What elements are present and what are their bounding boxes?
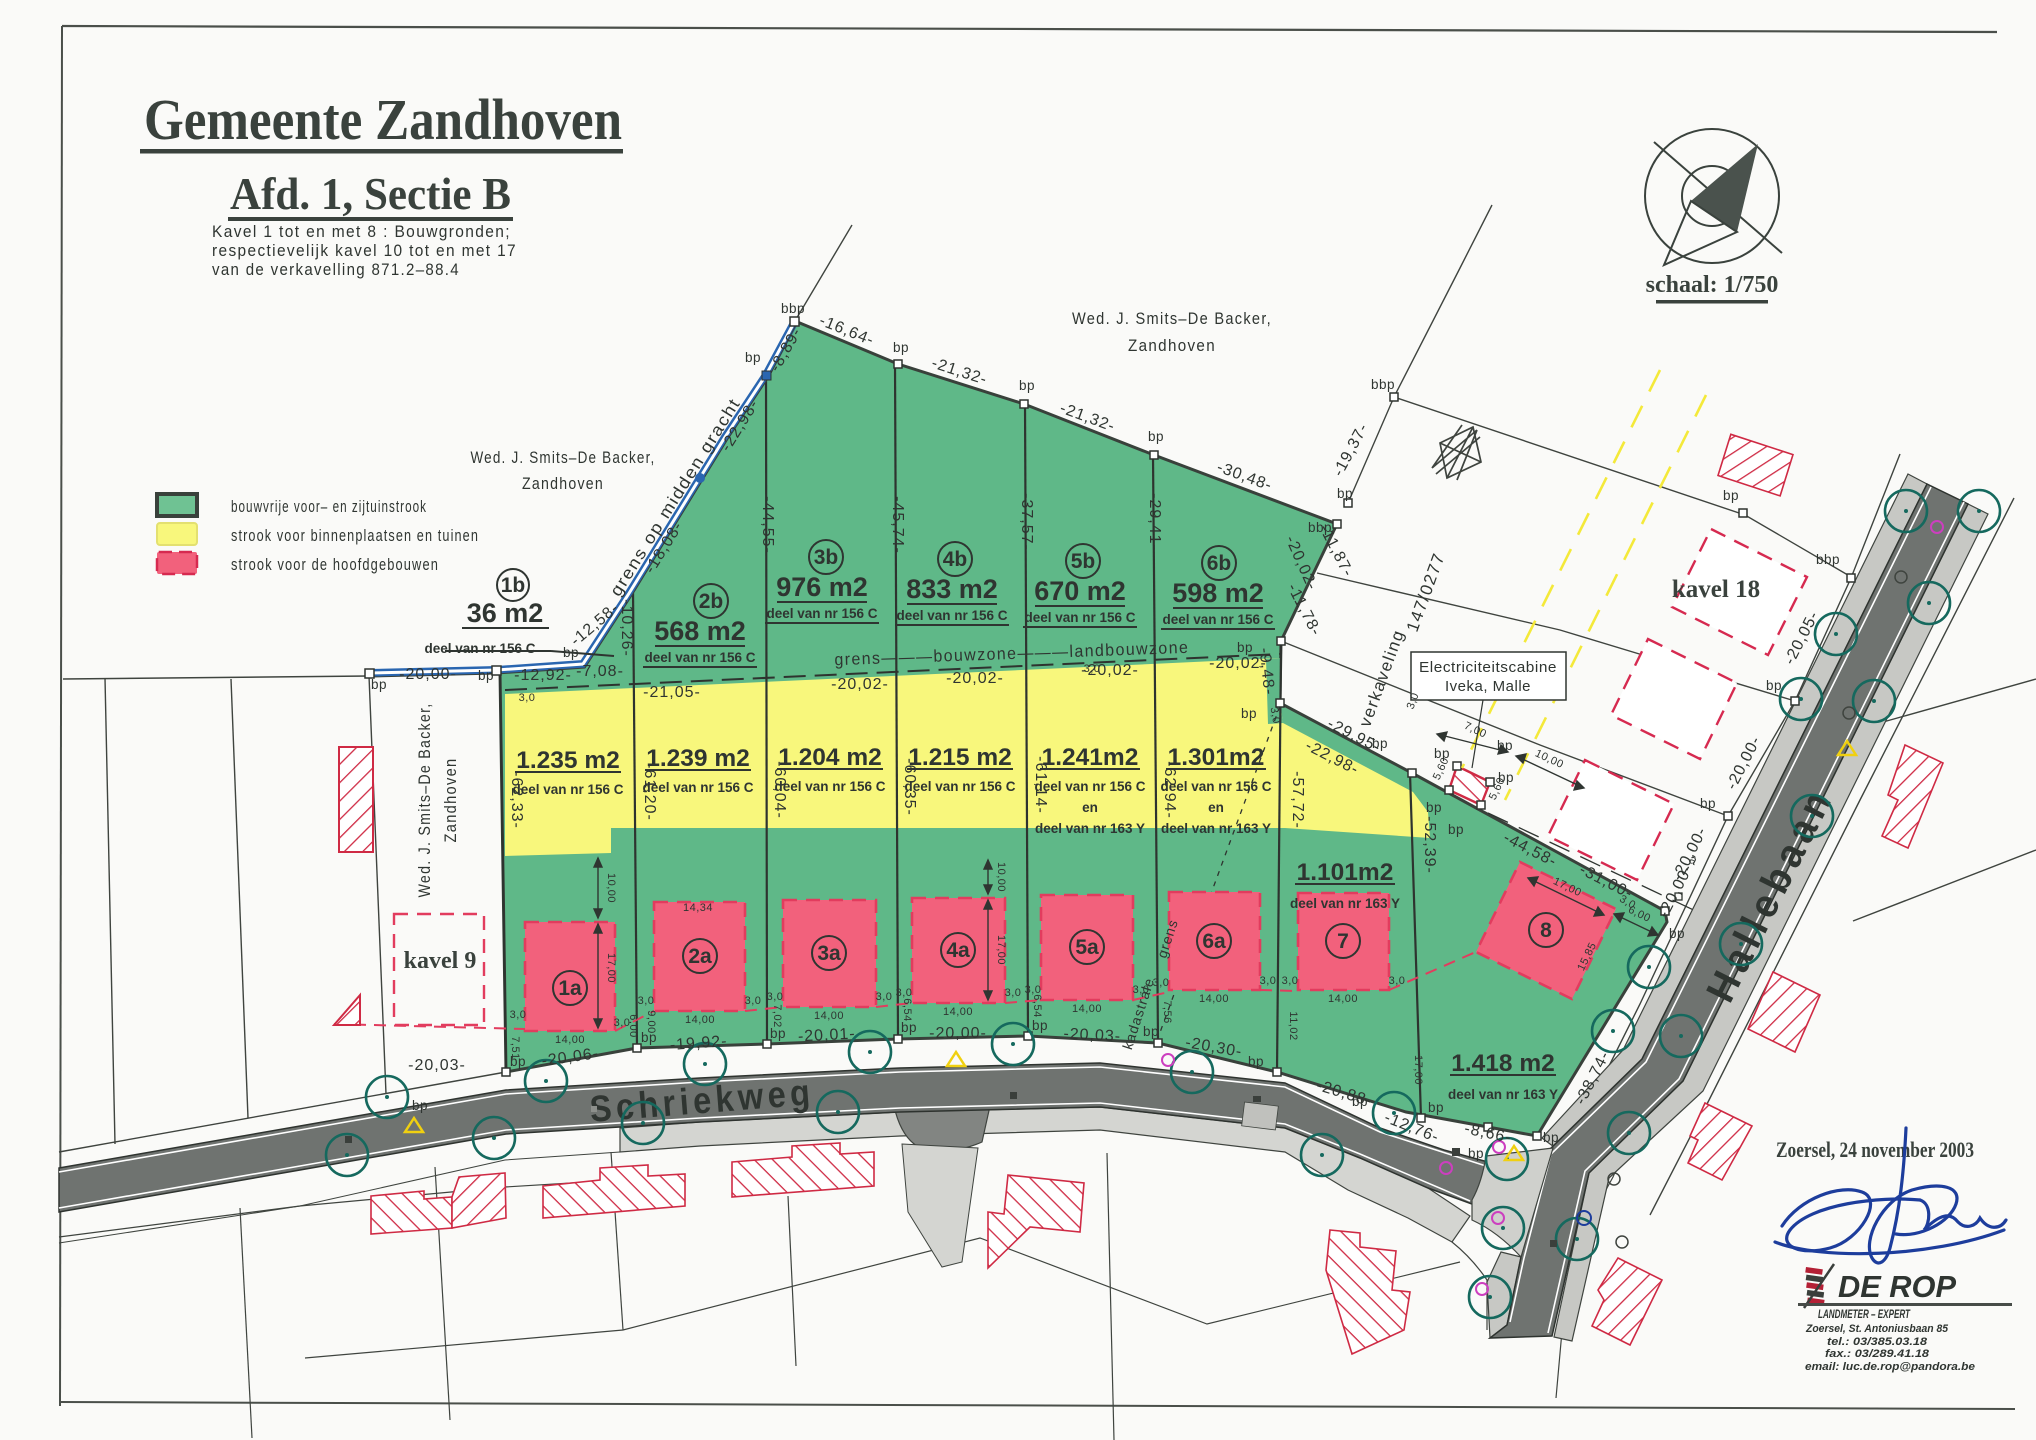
svg-text:1.204 m2: 1.204 m2 [778, 744, 882, 771]
svg-text:bp: bp [1241, 706, 1257, 721]
svg-text:deel van nr 156 C: deel van nr 156 C [1024, 610, 1135, 625]
svg-text:3,0: 3,0 [519, 692, 536, 704]
svg-text:3,0: 3,0 [1389, 975, 1406, 987]
svg-text:1a: 1a [558, 977, 582, 1000]
svg-text:8: 8 [1540, 919, 1552, 942]
svg-text:5b: 5b [1071, 550, 1096, 573]
svg-text:bp: bp [745, 350, 761, 365]
svg-text:-20,00-: -20,00- [929, 1025, 987, 1042]
svg-text:bp: bp [1148, 429, 1164, 444]
svg-text:6,54: 6,54 [1031, 994, 1043, 1017]
svg-text:strook voor de hoofdgebouwen: strook voor de hoofdgebouwen [231, 555, 439, 574]
svg-text:bouwvrije voor– en zijtuinstro: bouwvrije voor– en zijtuinstrook [231, 497, 427, 516]
svg-text:kavel 9: kavel 9 [404, 948, 477, 974]
svg-text:6a: 6a [1202, 930, 1226, 953]
svg-text:deel van nr 156 C: deel van nr 156 C [644, 650, 755, 665]
svg-text:14,00: 14,00 [1328, 993, 1358, 1005]
svg-text:Zoersel, 24 november 2003: Zoersel, 24 november 2003 [1776, 1137, 1974, 1162]
svg-text:-7,08-: -7,08- [576, 663, 624, 680]
svg-text:bp: bp [1700, 796, 1716, 811]
svg-text:deel van nr 156 C: deel van nr 156 C [512, 782, 623, 797]
svg-text:Wed. J. Smits–De Backer,: Wed. J. Smits–De Backer, [471, 448, 656, 467]
svg-text:-20,03-: -20,03- [1063, 1026, 1122, 1046]
svg-text:deel van nr 163 Y: deel van nr 163 Y [1035, 821, 1145, 836]
svg-text:-60,35-: -60,35- [901, 758, 918, 816]
svg-text:7,02: 7,02 [771, 1004, 783, 1027]
svg-text:bp: bp [893, 340, 909, 355]
svg-text:bp: bp [1237, 640, 1253, 655]
svg-text:bbp: bbp [1816, 552, 1840, 567]
svg-text:-10,26-: -10,26- [618, 599, 635, 657]
svg-text:bp: bp [1372, 736, 1388, 751]
svg-text:-61,20-: -61,20- [641, 763, 658, 821]
svg-text:fax.: 03/289.41.18: fax.: 03/289.41.18 [1825, 1348, 1930, 1360]
svg-text:Iveka, Malle: Iveka, Malle [1445, 679, 1531, 695]
svg-text:Zandhoven: Zandhoven [441, 758, 460, 843]
svg-text:3,0: 3,0 [745, 995, 762, 1007]
svg-text:-61,14-: -61,14- [1032, 756, 1049, 814]
svg-text:-12,92-: -12,92- [514, 667, 572, 684]
svg-text:bp: bp [1019, 378, 1035, 393]
svg-text:14,00: 14,00 [685, 1014, 715, 1026]
svg-text:bp: bp [1448, 822, 1464, 837]
svg-text:3b: 3b [814, 546, 839, 569]
svg-text:en: en [1208, 800, 1224, 815]
svg-text:bbp: bbp [781, 301, 805, 316]
svg-text:Kavel 1 tot en met 8 : Bouwgro: Kavel 1 tot en met 8 : Bouwgronden; [212, 222, 511, 241]
svg-text:Zandhoven: Zandhoven [1128, 336, 1216, 355]
svg-text:1.241m2: 1.241m2 [1042, 744, 1139, 771]
svg-text:schaal: 1/750: schaal: 1/750 [1646, 272, 1779, 298]
svg-text:deel van nr 156 C: deel van nr 156 C [1034, 779, 1145, 794]
svg-text:3,0: 3,0 [876, 991, 893, 1003]
svg-text:-20,00-: -20,00- [399, 666, 457, 683]
svg-text:3,0: 3,0 [1260, 975, 1277, 987]
svg-text:-57,72-: -57,72- [1289, 771, 1306, 829]
svg-text:bp: bp [1426, 800, 1442, 815]
svg-text:833 m2: 833 m2 [906, 574, 998, 604]
svg-text:17,00: 17,00 [605, 953, 617, 983]
svg-text:3,0: 3,0 [896, 987, 913, 999]
svg-text:3,0: 3,0 [638, 995, 655, 1007]
svg-text:kavel 18: kavel 18 [1672, 576, 1760, 603]
svg-text:3,0: 3,0 [767, 991, 784, 1003]
svg-text:3,0: 3,0 [1005, 987, 1022, 999]
svg-text:bp: bp [1766, 678, 1782, 693]
svg-text:3,0: 3,0 [1153, 977, 1170, 989]
svg-text:bp: bp [1468, 1146, 1484, 1161]
svg-text:Zoersel, St. Antoniusbaan 85: Zoersel, St. Antoniusbaan 85 [1805, 1323, 1949, 1335]
svg-text:Gemeente Zandhoven: Gemeente Zandhoven [144, 87, 622, 152]
svg-text:Wed. J. Smits–De Backer,: Wed. J. Smits–De Backer, [1072, 309, 1272, 328]
svg-text:deel van nr 163 Y: deel van nr 163 Y [1448, 1087, 1558, 1102]
svg-text:6b: 6b [1207, 552, 1232, 575]
svg-text:bp: bp [1723, 488, 1739, 503]
svg-text:36 m2: 36 m2 [467, 598, 544, 628]
svg-text:-20,02-: -20,02- [831, 676, 889, 693]
svg-text:strook voor binnenplaatsen en: strook voor binnenplaatsen en tuinen [231, 526, 479, 545]
svg-text:14,00: 14,00 [1072, 1003, 1102, 1015]
svg-text:568 m2: 568 m2 [654, 616, 746, 646]
svg-text:-62,94-: -62,94- [1161, 761, 1178, 819]
svg-text:598 m2: 598 m2 [1172, 578, 1264, 608]
svg-text:1.101m2: 1.101m2 [1297, 859, 1394, 886]
svg-text:bp: bp [1248, 1054, 1264, 1069]
svg-text:deel van nr 163 Y: deel van nr 163 Y [1161, 821, 1271, 836]
svg-text:976 m2: 976 m2 [776, 572, 868, 602]
svg-text:14,00: 14,00 [555, 1034, 585, 1046]
svg-text:-45,74-: -45,74- [889, 496, 906, 554]
svg-text:tel.: 03/385.03.18: tel.: 03/385.03.18 [1827, 1336, 1928, 1348]
svg-text:3,0: 3,0 [1084, 663, 1101, 675]
svg-text:Afd. 1, Sectie B: Afd. 1, Sectie B [230, 168, 511, 219]
svg-text:bp: bp [412, 1098, 428, 1113]
svg-text:bp: bp [478, 668, 494, 683]
svg-text:14,00: 14,00 [943, 1006, 973, 1018]
svg-text:-20,02-: -20,02- [946, 670, 1004, 687]
svg-text:bp: bp [1352, 1094, 1368, 1109]
svg-text:deel van nr 156 C: deel van nr 156 C [774, 779, 885, 794]
svg-text:2a: 2a [688, 945, 712, 968]
svg-text:bp: bp [901, 1020, 917, 1035]
svg-text:3,0: 3,0 [510, 1009, 527, 1021]
svg-text:1.235 m2: 1.235 m2 [516, 747, 620, 774]
svg-text:-44,55-: -44,55- [759, 496, 776, 554]
svg-text:Zandhoven: Zandhoven [522, 474, 604, 493]
svg-text:en: en [1082, 800, 1098, 815]
svg-text:-60,04-: -60,04- [771, 761, 788, 819]
svg-text:14,00: 14,00 [814, 1010, 844, 1022]
svg-text:deel van nr 156 C: deel van nr 156 C [896, 608, 1007, 623]
svg-text:2b: 2b [699, 590, 724, 613]
svg-text:deel van nr 156 C: deel van nr 156 C [1162, 612, 1273, 627]
svg-text:17,00: 17,00 [1412, 1055, 1424, 1085]
svg-text:5a: 5a [1075, 936, 1099, 959]
svg-text:1.239 m2: 1.239 m2 [646, 745, 750, 772]
svg-text:deel van nr 156 C: deel van nr 156 C [424, 641, 535, 656]
svg-text:bp: bp [1543, 1130, 1559, 1145]
svg-text:7,56: 7,56 [1161, 1000, 1173, 1023]
svg-text:email: luc.de.rop@pandora.be: email: luc.de.rop@pandora.be [1805, 1361, 1975, 1373]
svg-text:670 m2: 670 m2 [1034, 576, 1126, 606]
svg-text:bbp: bbp [1371, 377, 1395, 392]
svg-text:LANDMETER – EXPERT: LANDMETER – EXPERT [1818, 1307, 1911, 1321]
svg-text:-52,39-: -52,39- [1421, 816, 1438, 874]
svg-text:deel van nr 163 Y: deel van nr 163 Y [1290, 896, 1400, 911]
svg-text:3a: 3a [817, 942, 841, 965]
svg-text:bp: bp [1669, 926, 1685, 941]
svg-text:1.418 m2: 1.418 m2 [1451, 1050, 1555, 1077]
svg-text:bp: bp [1143, 1024, 1159, 1039]
svg-text:bp: bp [1428, 1100, 1444, 1115]
svg-text:bp: bp [371, 677, 387, 692]
svg-text:6,54: 6,54 [901, 998, 913, 1021]
svg-text:-20,01-: -20,01- [798, 1026, 857, 1046]
svg-text:bp: bp [1032, 1018, 1048, 1033]
svg-text:14,00: 14,00 [1199, 993, 1229, 1005]
svg-text:-29,41-: -29,41- [1146, 493, 1163, 551]
svg-text:DE ROP: DE ROP [1838, 1269, 1956, 1304]
svg-text:Electriciteitscabine: Electriciteitscabine [1419, 660, 1557, 676]
svg-text:Wed. J. Smits–De Backer,: Wed. J. Smits–De Backer, [415, 703, 434, 898]
svg-text:14,34: 14,34 [683, 902, 713, 914]
svg-text:9,00: 9,00 [645, 1010, 657, 1033]
svg-text:4a: 4a [946, 939, 970, 962]
svg-text:respectievelijk kavel 10 tot e: respectievelijk kavel 10 tot en met 17 [212, 241, 517, 260]
svg-text:10,00: 10,00 [995, 862, 1007, 892]
svg-text:-62,33-: -62,33- [508, 771, 525, 829]
svg-text:bbp: bbp [1308, 520, 1332, 535]
svg-text:7: 7 [1337, 930, 1349, 953]
svg-text:3,0: 3,0 [1133, 984, 1150, 996]
svg-text:deel van nr 156 C: deel van nr 156 C [904, 779, 1015, 794]
svg-text:deel van nr 156 C: deel van nr 156 C [766, 606, 877, 621]
svg-text:7,51: 7,51 [509, 1036, 521, 1059]
svg-text:bp: bp [1337, 486, 1353, 501]
svg-text:17,00: 17,00 [995, 935, 1007, 965]
svg-text:11,02: 11,02 [1287, 1011, 1299, 1040]
svg-text:3,0: 3,0 [1282, 975, 1299, 987]
svg-text:bp: bp [770, 1026, 786, 1041]
svg-text:-37,57-: -37,57- [1018, 493, 1035, 551]
svg-text:1.301m2: 1.301m2 [1168, 744, 1265, 771]
svg-text:van de verkavelling 871.2–88.4: van de verkavelling 871.2–88.4 [212, 260, 460, 279]
svg-text:-21,05-: -21,05- [643, 684, 701, 701]
svg-text:4b: 4b [943, 548, 968, 571]
svg-text:1.215 m2: 1.215 m2 [908, 744, 1012, 771]
svg-text:6,00: 6,00 [627, 1014, 639, 1037]
svg-text:1b: 1b [501, 574, 526, 597]
svg-text:bp: bp [563, 645, 579, 660]
svg-text:deel van nr 156 C: deel van nr 156 C [642, 780, 753, 795]
svg-text:10,00: 10,00 [605, 873, 617, 903]
svg-text:-20,03-: -20,03- [408, 1057, 466, 1074]
